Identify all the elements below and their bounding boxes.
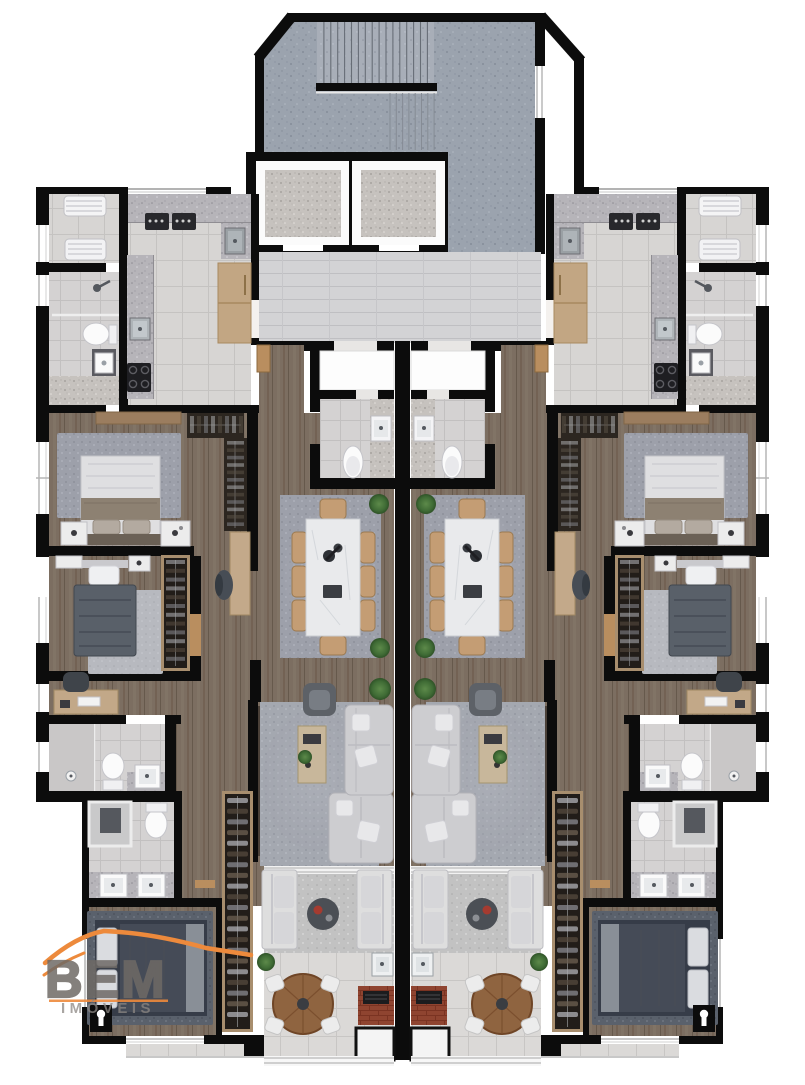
svg-text:IMÓVEIS: IMÓVEIS	[61, 999, 155, 1017]
